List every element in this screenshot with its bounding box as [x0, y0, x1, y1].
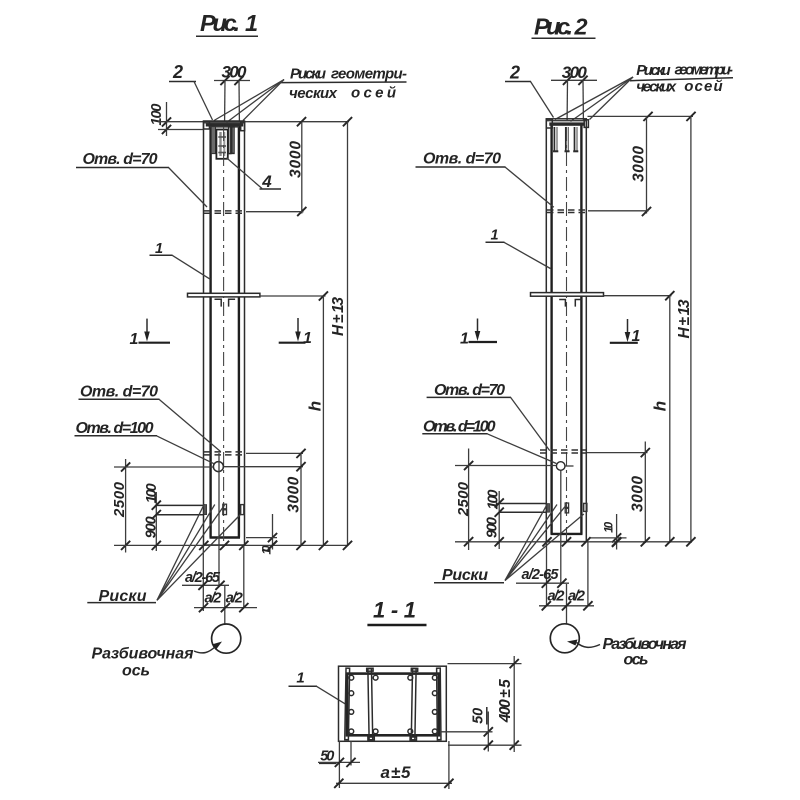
- svg-text:1: 1: [296, 670, 304, 687]
- svg-text:осей: осей: [684, 78, 723, 95]
- svg-text:4: 4: [261, 172, 272, 191]
- svg-text:ческих: ческих: [636, 79, 677, 96]
- svg-text:400 ± 5: 400 ± 5: [497, 679, 514, 723]
- svg-text:H ± 13: H ± 13: [676, 299, 693, 338]
- svg-text:Отв. d=100: Отв. d=100: [76, 420, 154, 437]
- svg-text:геометри-: геометри-: [331, 66, 407, 83]
- svg-text:h: h: [305, 401, 324, 411]
- svg-text:a/2-65: a/2-65: [185, 570, 221, 586]
- svg-text:Риски: Риски: [442, 567, 488, 584]
- svg-text:2: 2: [172, 62, 183, 82]
- svg-text:2: 2: [509, 63, 520, 83]
- svg-text:3000: 3000: [288, 141, 305, 178]
- svg-text:3000: 3000: [285, 476, 302, 512]
- svg-text:Рис.: Рис.: [534, 14, 573, 40]
- svg-text:Риски: Риски: [290, 66, 326, 83]
- svg-text:2: 2: [573, 14, 587, 40]
- svg-text:1 - 1: 1 - 1: [373, 598, 416, 623]
- svg-text:Отв. d=100: Отв. d=100: [423, 419, 496, 436]
- svg-text:1: 1: [303, 330, 312, 347]
- svg-text:Отв. d=70: Отв. d=70: [80, 384, 158, 401]
- svg-text:геометри-: геометри-: [675, 62, 734, 79]
- svg-text:ось: ось: [624, 652, 649, 669]
- svg-text:3000: 3000: [630, 146, 647, 182]
- svg-text:2500: 2500: [111, 481, 128, 518]
- svg-text:2500: 2500: [455, 481, 472, 517]
- svg-text:h: h: [650, 401, 669, 411]
- svg-text:H ± 13: H ± 13: [330, 297, 347, 336]
- svg-text:10: 10: [603, 521, 615, 533]
- svg-text:1: 1: [130, 331, 139, 348]
- svg-text:900: 900: [143, 516, 159, 538]
- svg-text:a/2-65: a/2-65: [522, 567, 560, 583]
- svg-text:1: 1: [490, 228, 498, 244]
- svg-text:Разбивочная: Разбивочная: [603, 636, 688, 653]
- svg-text:900: 900: [485, 517, 501, 538]
- svg-text:Рис.: Рис.: [200, 10, 240, 36]
- svg-text:100: 100: [144, 483, 160, 503]
- svg-text:a ± 5: a ± 5: [381, 763, 412, 782]
- svg-text:1: 1: [245, 10, 258, 36]
- svg-text:Отв. d=70: Отв. d=70: [434, 382, 505, 399]
- svg-text:50: 50: [471, 708, 487, 724]
- svg-text:Отв. d=70: Отв. d=70: [83, 151, 158, 168]
- svg-text:Риски: Риски: [636, 62, 671, 79]
- svg-text:1: 1: [460, 331, 469, 348]
- svg-text:Разбивочная: Разбивочная: [92, 646, 195, 663]
- svg-text:ось: ось: [122, 663, 150, 680]
- svg-text:300: 300: [222, 63, 248, 82]
- svg-text:ческих: ческих: [289, 85, 338, 102]
- svg-text:100: 100: [486, 490, 502, 510]
- svg-text:Отв. d=70: Отв. d=70: [423, 151, 501, 168]
- svg-text:3000: 3000: [629, 476, 646, 512]
